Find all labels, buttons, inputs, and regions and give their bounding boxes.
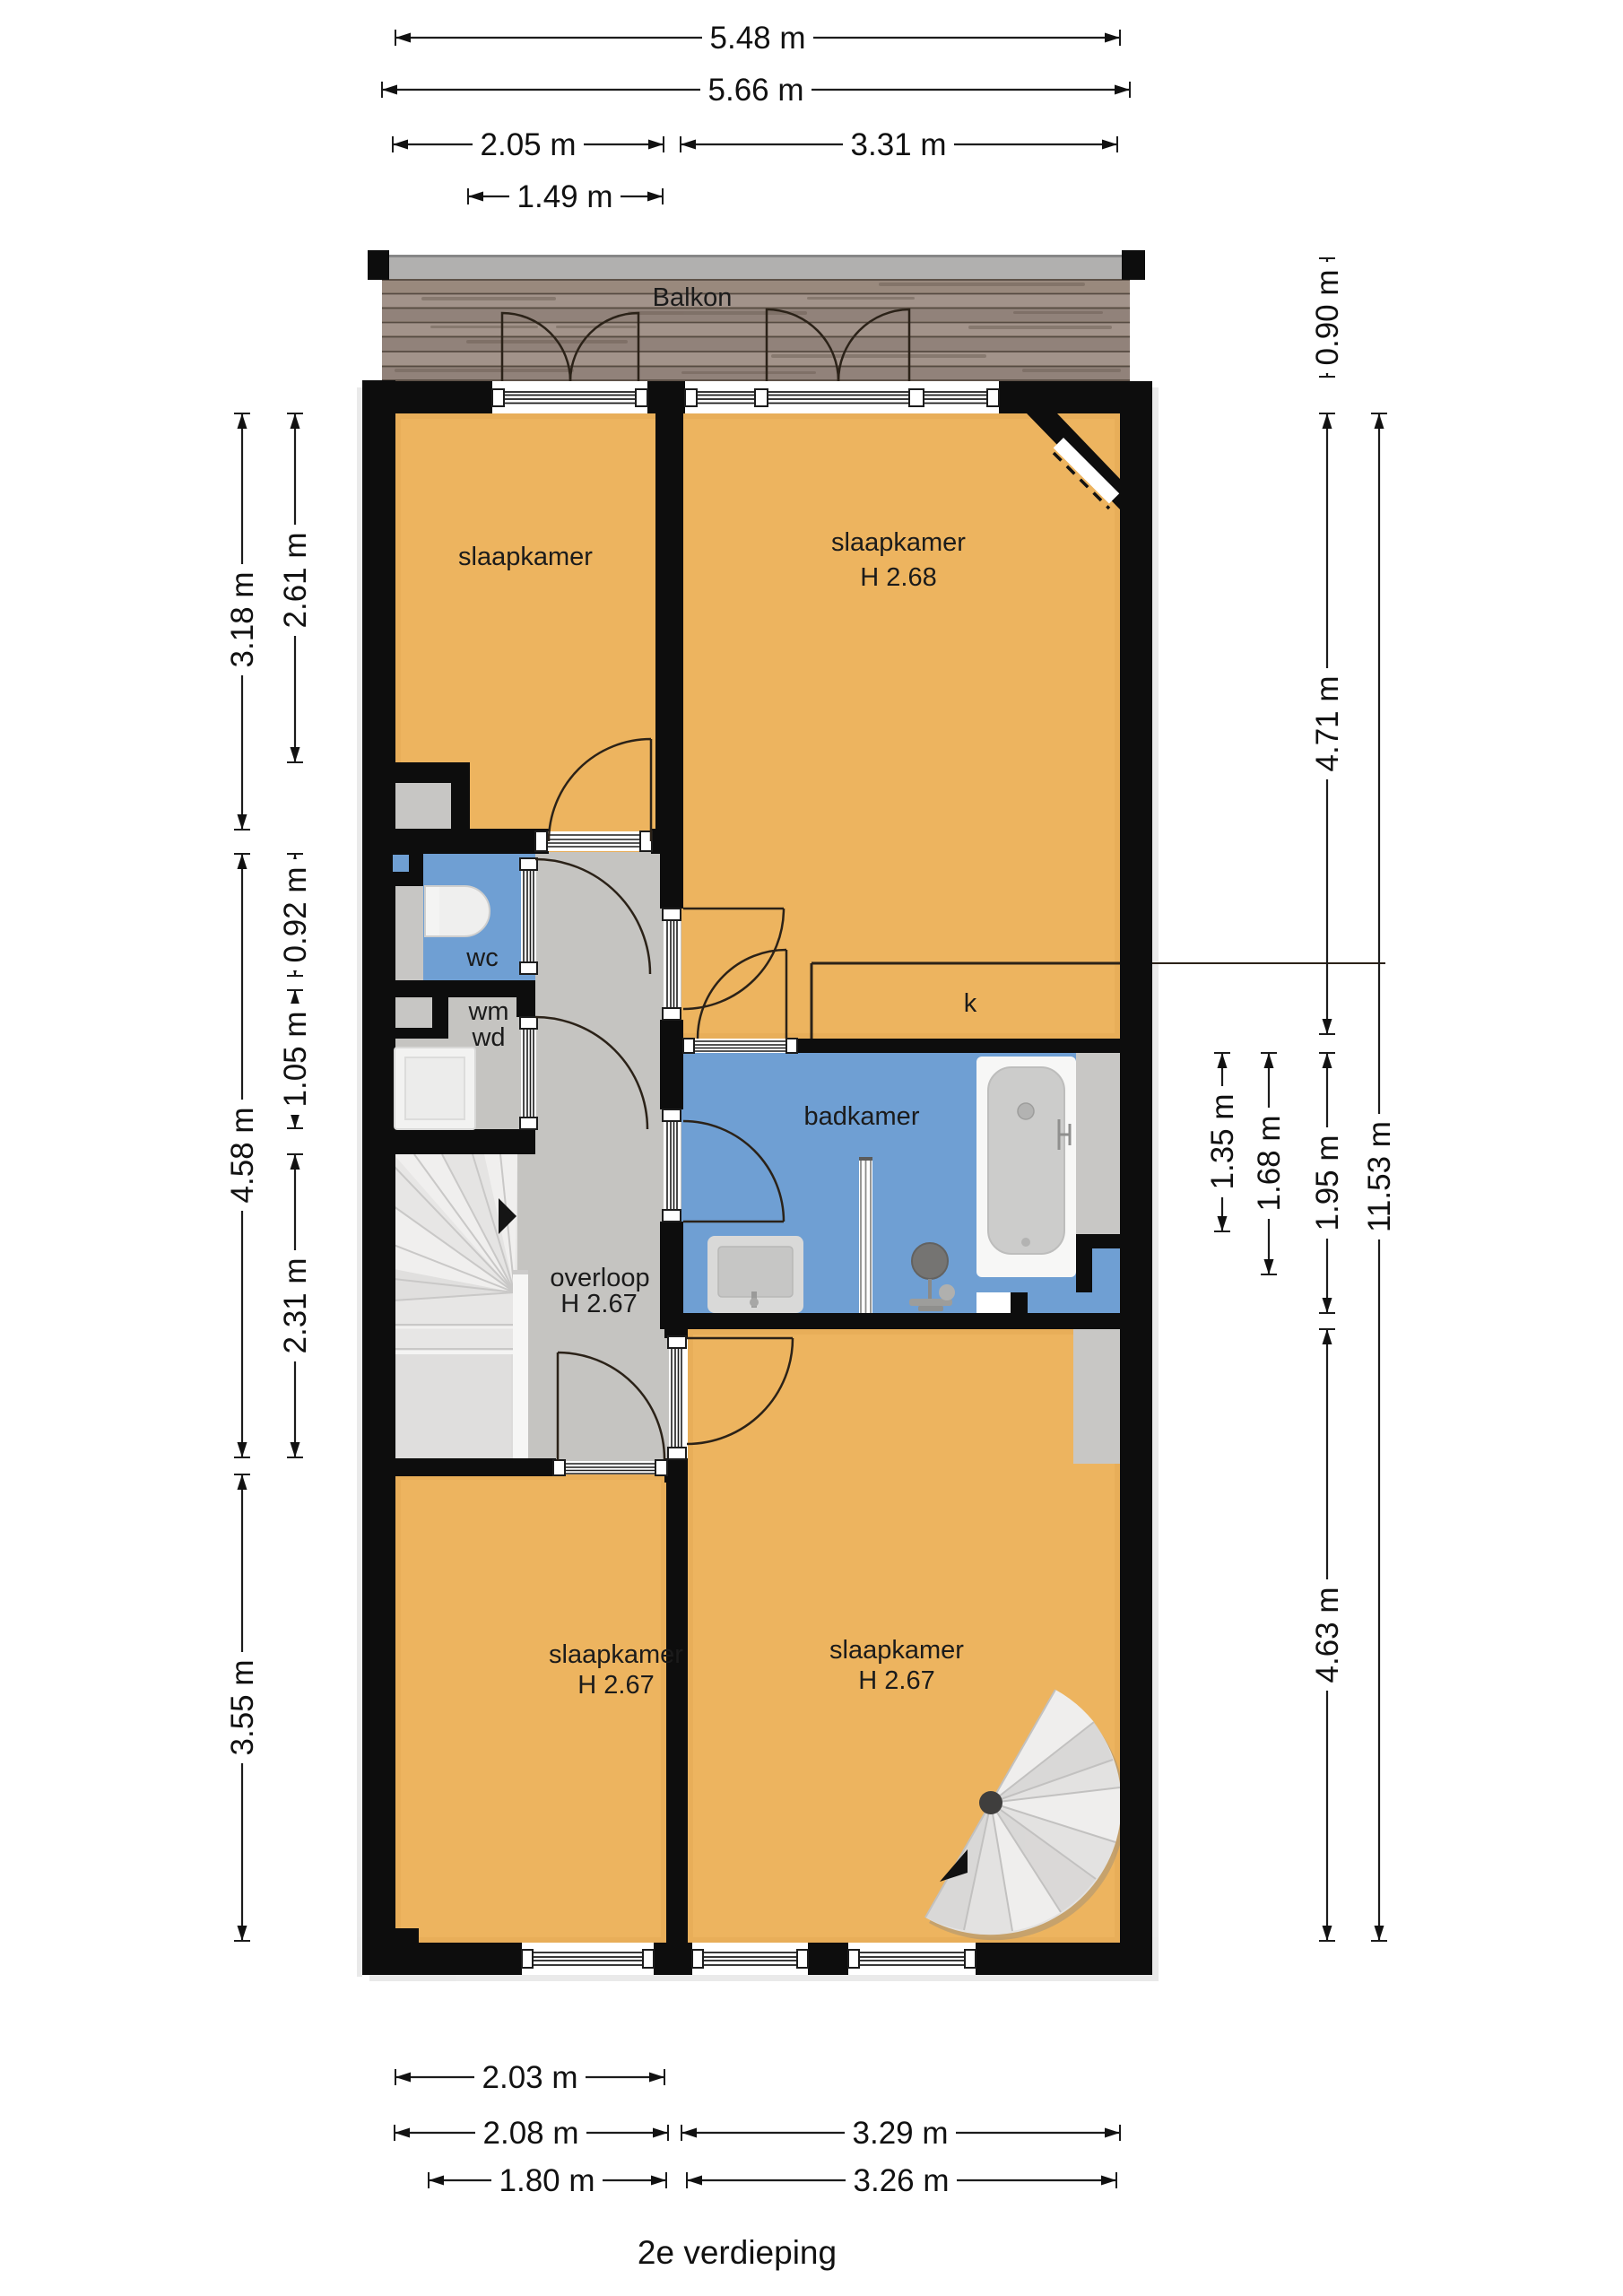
svg-text:Balkon: Balkon [653, 283, 733, 312]
svg-text:wd: wd [471, 1023, 505, 1052]
svg-text:2.05 m: 2.05 m [481, 127, 577, 162]
svg-text:k: k [964, 989, 977, 1018]
svg-text:3.29 m: 3.29 m [853, 2116, 949, 2151]
svg-text:wm: wm [467, 997, 508, 1026]
svg-text:overloop: overloop [550, 1264, 649, 1292]
svg-text:3.55 m: 3.55 m [225, 1660, 260, 1756]
svg-text:0.90 m: 0.90 m [1310, 270, 1345, 366]
svg-text:badkamer: badkamer [804, 1102, 920, 1131]
svg-text:5.48 m: 5.48 m [710, 21, 806, 56]
svg-text:wc: wc [465, 944, 498, 972]
svg-text:4.63 m: 4.63 m [1310, 1587, 1345, 1683]
svg-text:slaapkamer: slaapkamer [458, 543, 593, 571]
svg-text:slaapkamer: slaapkamer [831, 528, 966, 557]
svg-text:H 2.67: H 2.67 [560, 1290, 637, 1318]
svg-text:4.71 m: 4.71 m [1310, 676, 1345, 772]
svg-text:1.35 m: 1.35 m [1205, 1094, 1240, 1190]
svg-text:3.31 m: 3.31 m [851, 127, 947, 162]
svg-text:3.18 m: 3.18 m [225, 572, 260, 668]
svg-text:2.03 m: 2.03 m [482, 2060, 578, 2095]
svg-text:2.61 m: 2.61 m [278, 533, 313, 629]
svg-text:1.95 m: 1.95 m [1310, 1135, 1345, 1231]
svg-text:slaapkamer: slaapkamer [829, 1636, 964, 1665]
svg-text:0.92 m: 0.92 m [278, 867, 313, 963]
svg-text:H 2.68: H 2.68 [860, 563, 936, 592]
svg-text:11.53 m: 11.53 m [1362, 1121, 1397, 1232]
svg-text:H 2.67: H 2.67 [577, 1671, 654, 1700]
svg-text:slaapkamer: slaapkamer [549, 1640, 683, 1669]
svg-text:3.26 m: 3.26 m [854, 2163, 950, 2198]
svg-text:5.66 m: 5.66 m [708, 73, 804, 108]
svg-text:2.08 m: 2.08 m [483, 2116, 579, 2151]
svg-text:1.68 m: 1.68 m [1252, 1116, 1287, 1212]
svg-text:1.80 m: 1.80 m [499, 2163, 595, 2198]
svg-text:4.58 m: 4.58 m [225, 1108, 260, 1204]
svg-text:2e verdieping: 2e verdieping [638, 2234, 837, 2271]
svg-text:H 2.67: H 2.67 [858, 1666, 934, 1695]
svg-text:1.49 m: 1.49 m [517, 179, 613, 214]
svg-text:2.31 m: 2.31 m [278, 1258, 313, 1354]
svg-text:1.05 m: 1.05 m [278, 1012, 313, 1108]
